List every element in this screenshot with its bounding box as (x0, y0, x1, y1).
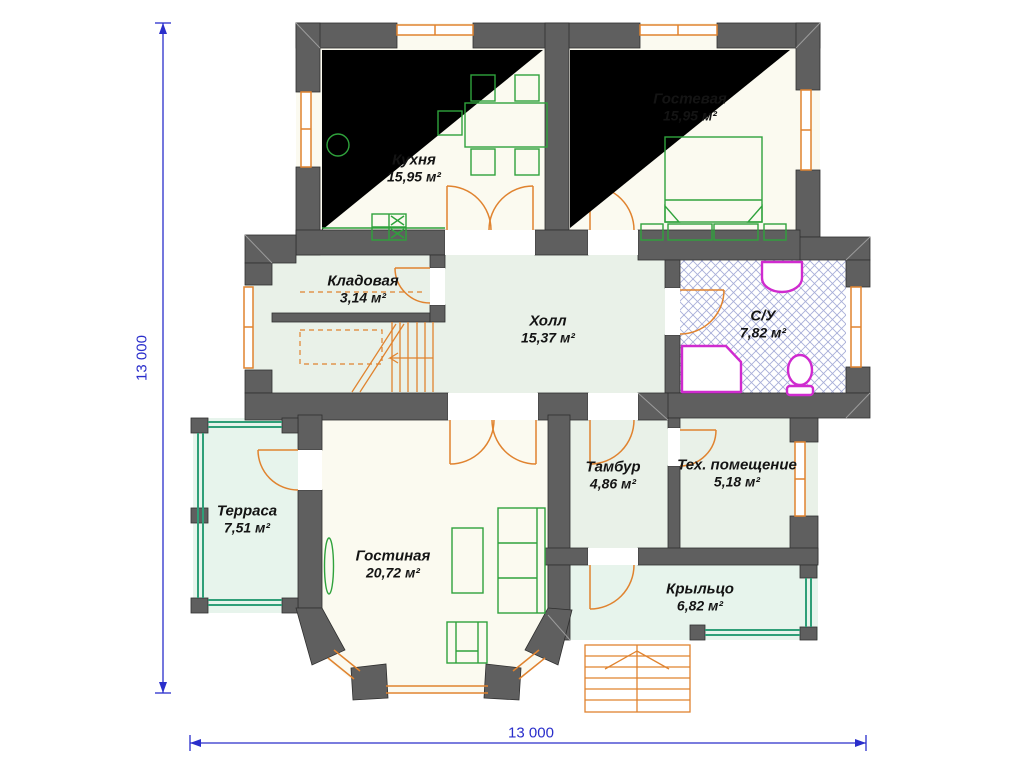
floor-plan-canvas (0, 0, 1024, 768)
room-name: Кухня (387, 151, 441, 168)
room-label-utility-room: Тех. помещение 5,18 м² (677, 456, 797, 489)
room-label-vestibule: Тамбур 4,86 м² (585, 458, 640, 491)
room-area: 3,14 м² (327, 290, 398, 306)
room-name: Холл (521, 312, 575, 329)
room-name: Гостиная (356, 547, 431, 564)
room-label-bathroom: С/У 7,82 м² (740, 307, 786, 340)
room-area: 15,95 м² (387, 169, 441, 185)
room-name: Крыльцо (666, 580, 734, 597)
room-name: Кладовая (327, 272, 398, 289)
dimension-line-left (155, 23, 171, 693)
room-name: Терраса (217, 502, 277, 519)
room-name: Тамбур (585, 458, 640, 475)
room-name: С/У (740, 307, 786, 324)
shower (682, 346, 741, 392)
room-name: Тех. помещение (677, 456, 797, 473)
room-area: 7,51 м² (217, 520, 277, 536)
sink (762, 262, 802, 292)
toilet (787, 355, 813, 395)
dimension-label-left: 13 000 (134, 335, 151, 381)
room-area: 6,82 м² (666, 598, 734, 614)
floor-plan-page: Кухня 15,95 м² Гостевая 15,95 м² Кладова… (0, 0, 1024, 768)
room-label-kitchen: Кухня 15,95 м² (387, 151, 441, 184)
dimension-label-bottom: 13 000 (508, 725, 554, 742)
room-area: 20,72 м² (356, 565, 431, 581)
room-name: Гостевая (653, 90, 726, 107)
room-label-guest-room: Гостевая 15,95 м² (653, 90, 726, 123)
room-label-living-room: Гостиная 20,72 м² (356, 547, 431, 580)
room-label-terrace: Терраса 7,51 м² (217, 502, 277, 535)
room-area: 7,82 м² (740, 325, 786, 341)
room-label-hall: Холл 15,37 м² (521, 312, 575, 345)
room-area: 5,18 м² (677, 474, 797, 490)
room-label-storage: Кладовая 3,14 м² (327, 272, 398, 305)
bay-pier (351, 664, 388, 700)
room-area: 4,86 м² (585, 476, 640, 492)
exterior-stairs (585, 645, 690, 712)
room-label-porch: Крыльцо 6,82 м² (666, 580, 734, 613)
room-area: 15,37 м² (521, 330, 575, 346)
room-floors (193, 23, 846, 692)
room-area: 15,95 м² (653, 108, 726, 124)
